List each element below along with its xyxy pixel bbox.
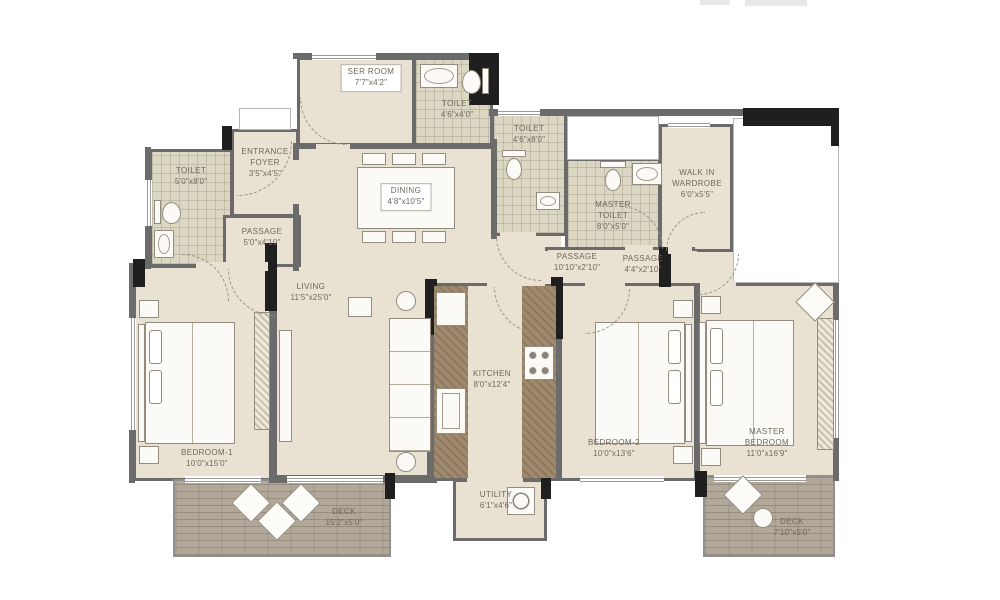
washbasin <box>536 192 560 210</box>
opening-ser-room-door <box>316 144 350 153</box>
nightstand <box>673 300 693 318</box>
label-bedroom2: BEDROOM-210'0"x13'6" <box>588 438 640 460</box>
wc-tank <box>154 200 161 224</box>
label-passage-mid: PASSAGE10'10"x2'10" <box>554 252 600 274</box>
column <box>695 471 707 497</box>
opening-passage-left <box>543 251 551 284</box>
basin-bowl <box>540 196 556 206</box>
bed-headboard <box>699 322 706 444</box>
wc-bowl <box>605 169 621 191</box>
cropped-logo-fragment <box>700 0 730 5</box>
window <box>185 476 261 483</box>
basin-bowl <box>158 234 170 254</box>
label-dining: DINING4'8"x10'5" <box>381 183 432 211</box>
wardrobe <box>817 318 834 450</box>
washbasin <box>154 230 174 258</box>
opening-kitchen-utility <box>467 476 523 484</box>
tv-console <box>279 330 292 442</box>
wc-bowl <box>162 202 181 224</box>
wc-tank <box>600 161 626 168</box>
window <box>129 318 136 430</box>
nightstand <box>139 300 159 318</box>
wc-bowl <box>506 158 522 180</box>
dining-chair <box>392 231 416 243</box>
pillow <box>710 328 723 364</box>
wardrobe <box>254 312 270 430</box>
nightstand <box>701 296 721 314</box>
label-living: LIVING11'5"x25'0" <box>290 282 331 304</box>
dining-chair <box>362 153 386 165</box>
column <box>385 473 395 499</box>
label-ser-room: SER ROOM7'7"x4'2" <box>341 64 402 92</box>
pillow <box>710 370 723 406</box>
side-table <box>396 291 416 311</box>
window <box>312 53 376 60</box>
cropped-logo-fragment <box>745 0 807 6</box>
window <box>145 180 152 226</box>
nightstand <box>673 446 693 464</box>
label-deck-left: DECK15'2"x5'0" <box>326 507 363 529</box>
label-deck-right: DECK7'10"x5'0" <box>774 517 811 539</box>
basin-bowl <box>636 167 658 181</box>
column <box>222 126 232 150</box>
window <box>833 320 840 438</box>
opening-foyer-dining <box>293 160 302 204</box>
column <box>743 108 839 126</box>
column <box>831 116 839 146</box>
window <box>580 476 664 483</box>
label-master-toilet: MASTER TOILET8'0"x5'0" <box>585 200 641 232</box>
wc-bowl <box>462 70 481 94</box>
label-walk-in-wardrobe: WALK IN WARDROBE6'0"x5'5" <box>666 168 728 200</box>
bed-headboard <box>685 324 692 442</box>
label-toilet-left: TOILET5'0"x8'0" <box>175 166 207 188</box>
side-table <box>396 452 416 472</box>
label-master-bedroom: MASTER BEDROOM11'0"x16'9" <box>738 427 796 459</box>
window <box>668 121 710 128</box>
washbasin <box>632 163 662 185</box>
label-toilet-mid: TOILET4'6"x8'0" <box>513 124 545 146</box>
bed-headboard <box>138 324 145 442</box>
label-passage-right: PASSAGE4'4"x2'10" <box>623 254 663 276</box>
wc-tank <box>502 150 526 157</box>
column <box>133 259 145 287</box>
opening-passage-right <box>689 251 697 283</box>
dining-chair <box>362 231 386 243</box>
void-duct <box>567 116 659 160</box>
armchair <box>348 297 372 317</box>
refrigerator <box>436 292 466 326</box>
void-region <box>733 118 839 283</box>
sofa <box>389 318 431 452</box>
pillow <box>149 370 162 404</box>
label-entrance-foyer: ENTRANCE FOYER3'5"x4'5" <box>237 147 293 179</box>
wall <box>491 139 497 239</box>
pillow <box>668 370 681 404</box>
label-utility: UTILITY6'1"x4'6" <box>480 490 513 512</box>
label-kitchen: KITCHEN8'0"x12'4" <box>473 369 511 391</box>
dining-chair <box>422 153 446 165</box>
label-toilet-top: TOILET4'6"x4'0" <box>441 99 473 121</box>
nightstand <box>701 448 721 466</box>
opening-dining-living <box>302 262 428 274</box>
window <box>714 475 806 482</box>
basin-bowl <box>424 68 454 84</box>
window <box>287 476 383 483</box>
pillow <box>668 330 681 364</box>
washbasin <box>420 64 458 88</box>
kitchen-sink <box>436 388 466 434</box>
label-bedroom1: BEDROOM-110'0"x15'0" <box>181 448 233 470</box>
entry-step <box>239 108 291 130</box>
window <box>498 109 540 116</box>
wc-tank <box>482 68 489 94</box>
dining-chair <box>422 231 446 243</box>
label-passage-left: PASSAGE5'0"x4'10" <box>242 227 282 249</box>
deck-pot <box>753 508 773 528</box>
floor-plan: SER ROOM7'7"x4'2" TOILET4'6"x4'0" TOILET… <box>0 0 1000 600</box>
dining-chair <box>392 153 416 165</box>
nightstand <box>139 446 159 464</box>
pillow <box>149 330 162 364</box>
sink-basin <box>442 393 460 429</box>
stove-hob <box>524 346 554 380</box>
